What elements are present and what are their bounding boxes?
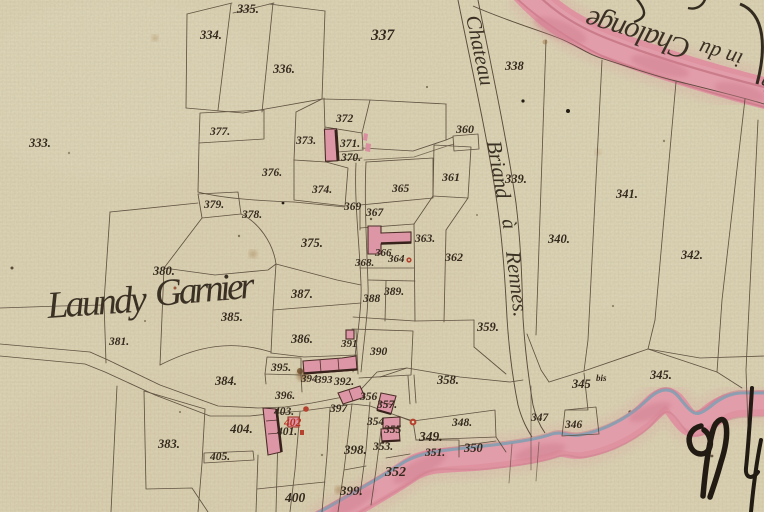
svg-text:399.: 399.	[339, 483, 363, 498]
svg-text:351.: 351.	[424, 447, 445, 459]
svg-text:371.: 371.	[339, 138, 360, 150]
svg-text:400: 400	[284, 490, 306, 505]
svg-text:350: 350	[463, 441, 484, 455]
svg-text:367: 367	[365, 207, 385, 219]
svg-text:365: 365	[391, 183, 410, 195]
svg-text:340.: 340.	[547, 232, 570, 246]
svg-text:345.: 345.	[649, 368, 672, 382]
svg-text:335.: 335.	[236, 2, 259, 16]
svg-text:376.: 376.	[261, 167, 282, 179]
svg-text:397: 397	[329, 403, 349, 415]
svg-text:bis: bis	[596, 373, 607, 383]
svg-text:334.: 334.	[199, 28, 222, 42]
svg-text:377.: 377.	[209, 126, 230, 138]
svg-text:354: 354	[366, 416, 385, 428]
svg-text:381.: 381.	[108, 336, 129, 348]
svg-text:379.: 379.	[203, 199, 224, 211]
svg-text:387.: 387.	[290, 287, 313, 301]
svg-text:393: 393	[315, 374, 333, 386]
svg-text:338: 338	[504, 59, 525, 73]
svg-text:360: 360	[455, 122, 474, 136]
svg-text:333.: 333.	[28, 136, 51, 150]
svg-text:336.: 336.	[272, 62, 295, 76]
svg-text:375.: 375.	[300, 236, 323, 250]
svg-text:405.: 405.	[209, 451, 230, 463]
svg-text:370.: 370.	[340, 152, 361, 164]
svg-text:358.: 358.	[436, 373, 459, 387]
svg-text:352: 352	[384, 465, 406, 480]
svg-text:359.: 359.	[476, 320, 499, 334]
svg-text:389.: 389.	[383, 286, 404, 298]
svg-text:390: 390	[369, 346, 388, 358]
svg-text:348.: 348.	[451, 417, 472, 429]
svg-text:384.: 384.	[214, 374, 237, 388]
svg-text:383.: 383.	[157, 437, 180, 451]
svg-text:356: 356	[359, 391, 378, 403]
svg-text:355: 355	[383, 424, 402, 436]
svg-text:373.: 373.	[295, 135, 316, 147]
svg-text:396.: 396.	[274, 390, 295, 402]
svg-text:388: 388	[362, 293, 381, 305]
svg-text:362: 362	[444, 250, 463, 264]
svg-text:403.: 403.	[273, 406, 294, 418]
svg-text:374.: 374.	[311, 184, 332, 196]
svg-text:366: 366	[374, 247, 392, 259]
svg-text:Laundy: Laundy	[45, 278, 149, 327]
svg-text:347: 347	[530, 412, 550, 424]
svg-text:395.: 395.	[270, 362, 291, 374]
svg-text:363.: 363.	[414, 233, 435, 245]
svg-text:391: 391	[340, 338, 358, 350]
svg-text:369: 369	[343, 201, 362, 213]
svg-text:349.: 349.	[418, 429, 443, 444]
svg-text:Garnier: Garnier	[153, 264, 256, 315]
svg-text:378.: 378.	[241, 209, 262, 221]
svg-text:346: 346	[564, 419, 583, 431]
svg-text:353.: 353.	[372, 441, 393, 453]
svg-text:398.: 398.	[343, 442, 367, 457]
svg-text:404.: 404.	[229, 421, 253, 436]
svg-text:368.: 368.	[354, 257, 374, 269]
svg-text:372: 372	[335, 113, 354, 125]
svg-text:386.: 386.	[290, 332, 313, 346]
svg-text:342.: 342.	[680, 248, 703, 262]
svg-text:402: 402	[283, 417, 302, 429]
svg-text:392.: 392.	[333, 376, 354, 388]
svg-text:357.: 357.	[376, 399, 397, 411]
svg-text:361: 361	[441, 170, 460, 184]
svg-text:337: 337	[370, 27, 396, 44]
svg-text:394: 394	[300, 373, 318, 385]
svg-text:385.: 385.	[220, 310, 243, 324]
svg-text:345: 345	[571, 377, 591, 391]
svg-text:341.: 341.	[615, 187, 638, 201]
